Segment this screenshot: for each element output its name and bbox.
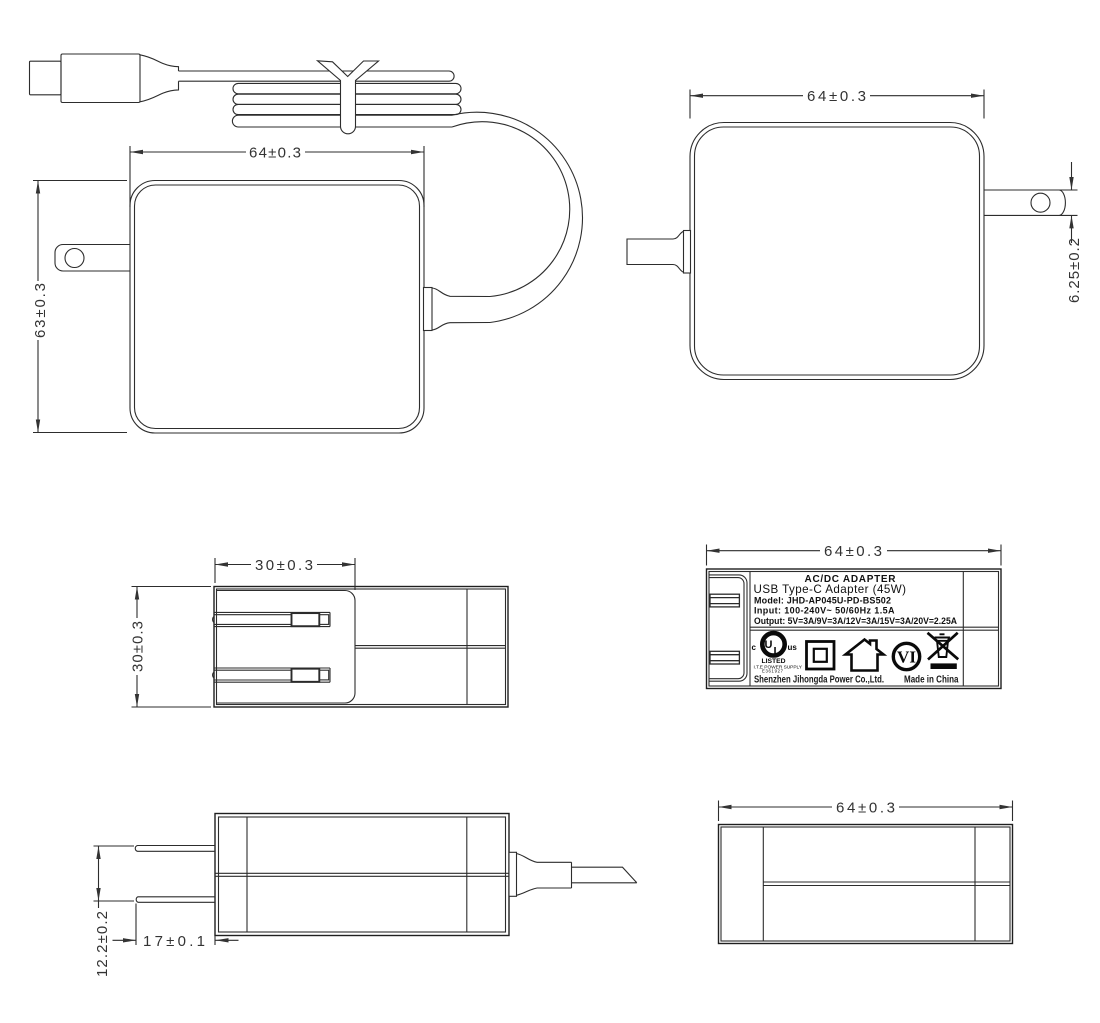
svg-text:Input: 100-240V~ 50/60Hz 1.5A: Input: 100-240V~ 50/60Hz 1.5A (754, 605, 895, 615)
svg-text:U: U (765, 639, 773, 651)
svg-text:30±0.3: 30±0.3 (130, 621, 147, 672)
svg-text:us: us (788, 643, 798, 652)
svg-text:E361927: E361927 (762, 669, 784, 674)
svg-text:Made in China: Made in China (904, 675, 959, 686)
svg-text:USB Type-C Adapter (45W): USB Type-C Adapter (45W) (754, 583, 907, 596)
svg-text:c: c (752, 643, 757, 652)
svg-text:6.25±0.2: 6.25±0.2 (1066, 238, 1083, 303)
svg-text:L: L (774, 646, 781, 658)
svg-text:Output: 5V=3A/9V=3A/12V=3A/15V: Output: 5V=3A/9V=3A/12V=3A/15V=3A/20V=2.… (754, 616, 957, 626)
svg-text:Shenzhen Jihongda Power Co.,Lt: Shenzhen Jihongda Power Co.,Ltd. (754, 675, 884, 686)
svg-text:VI: VI (897, 648, 916, 667)
svg-text:12.2±0.2: 12.2±0.2 (94, 911, 111, 977)
svg-text:LISTED: LISTED (762, 658, 786, 665)
svg-text:64±0.3: 64±0.3 (249, 145, 301, 162)
svg-text:Model: JHD-AP045U-PD-BS502: Model: JHD-AP045U-PD-BS502 (754, 595, 891, 605)
svg-text:63±0.3: 63±0.3 (32, 283, 49, 338)
